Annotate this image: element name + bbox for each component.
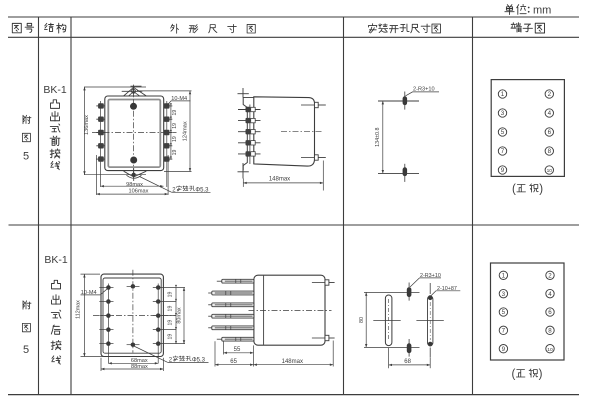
- svg-text:): ): [539, 184, 543, 196]
- svg-text:3: 3: [502, 291, 506, 298]
- svg-text:136max: 136max: [84, 115, 90, 135]
- svg-text:112max: 112max: [76, 300, 82, 319]
- svg-text:6: 6: [548, 129, 552, 136]
- svg-text:148max: 148max: [269, 177, 290, 183]
- svg-text:9: 9: [501, 167, 505, 174]
- svg-text:80: 80: [359, 317, 365, 323]
- svg-text:1: 1: [502, 273, 506, 280]
- svg-text:(: (: [512, 184, 516, 196]
- svg-text:3: 3: [501, 110, 505, 117]
- svg-text:10: 10: [547, 168, 553, 174]
- svg-text:9: 9: [502, 346, 506, 353]
- svg-text:2: 2: [548, 91, 552, 98]
- svg-text:88max: 88max: [131, 364, 148, 370]
- svg-text:7: 7: [501, 148, 505, 155]
- svg-text:19: 19: [168, 320, 174, 326]
- svg-text:19: 19: [168, 306, 174, 312]
- svg-text:1: 1: [501, 91, 505, 98]
- svg-text:19: 19: [172, 136, 178, 142]
- svg-text:(: (: [511, 369, 515, 381]
- svg-text:5: 5: [501, 129, 505, 136]
- svg-text:65: 65: [230, 359, 237, 365]
- svg-text:5: 5: [23, 344, 29, 356]
- svg-text:Φ5.3: Φ5.3: [195, 187, 209, 193]
- svg-text:BK-1: BK-1: [43, 84, 67, 96]
- svg-text:98max: 98max: [126, 182, 143, 188]
- svg-text:BK-1: BK-1: [44, 254, 68, 266]
- svg-text:5: 5: [502, 309, 506, 316]
- svg-text:mm: mm: [533, 4, 551, 16]
- svg-text:148max: 148max: [282, 359, 303, 365]
- svg-text:6: 6: [548, 309, 552, 316]
- svg-text:134±0.8: 134±0.8: [375, 127, 381, 146]
- svg-text:19: 19: [168, 334, 174, 340]
- svg-text:10: 10: [547, 347, 553, 353]
- svg-text:19: 19: [172, 110, 178, 116]
- svg-text:7: 7: [502, 328, 506, 335]
- svg-text:19: 19: [172, 123, 178, 129]
- svg-text:68: 68: [404, 359, 411, 365]
- svg-text:124max: 124max: [183, 121, 189, 141]
- svg-text:4: 4: [548, 291, 552, 298]
- svg-text:2-R3+10: 2-R3+10: [413, 86, 435, 92]
- svg-text:4: 4: [548, 110, 552, 117]
- svg-text:8: 8: [548, 148, 552, 155]
- svg-text:): ): [539, 369, 543, 381]
- svg-text:2: 2: [548, 273, 552, 280]
- svg-text:19: 19: [168, 292, 174, 298]
- svg-text:55: 55: [234, 347, 241, 353]
- svg-text:5: 5: [23, 151, 29, 163]
- svg-text:68max: 68max: [131, 358, 148, 364]
- svg-text:19: 19: [172, 149, 178, 155]
- svg-text:106max: 106max: [129, 189, 149, 195]
- svg-text:80max: 80max: [176, 307, 182, 323]
- svg-text:Φ5.3: Φ5.3: [192, 357, 206, 363]
- svg-text:8: 8: [548, 328, 552, 335]
